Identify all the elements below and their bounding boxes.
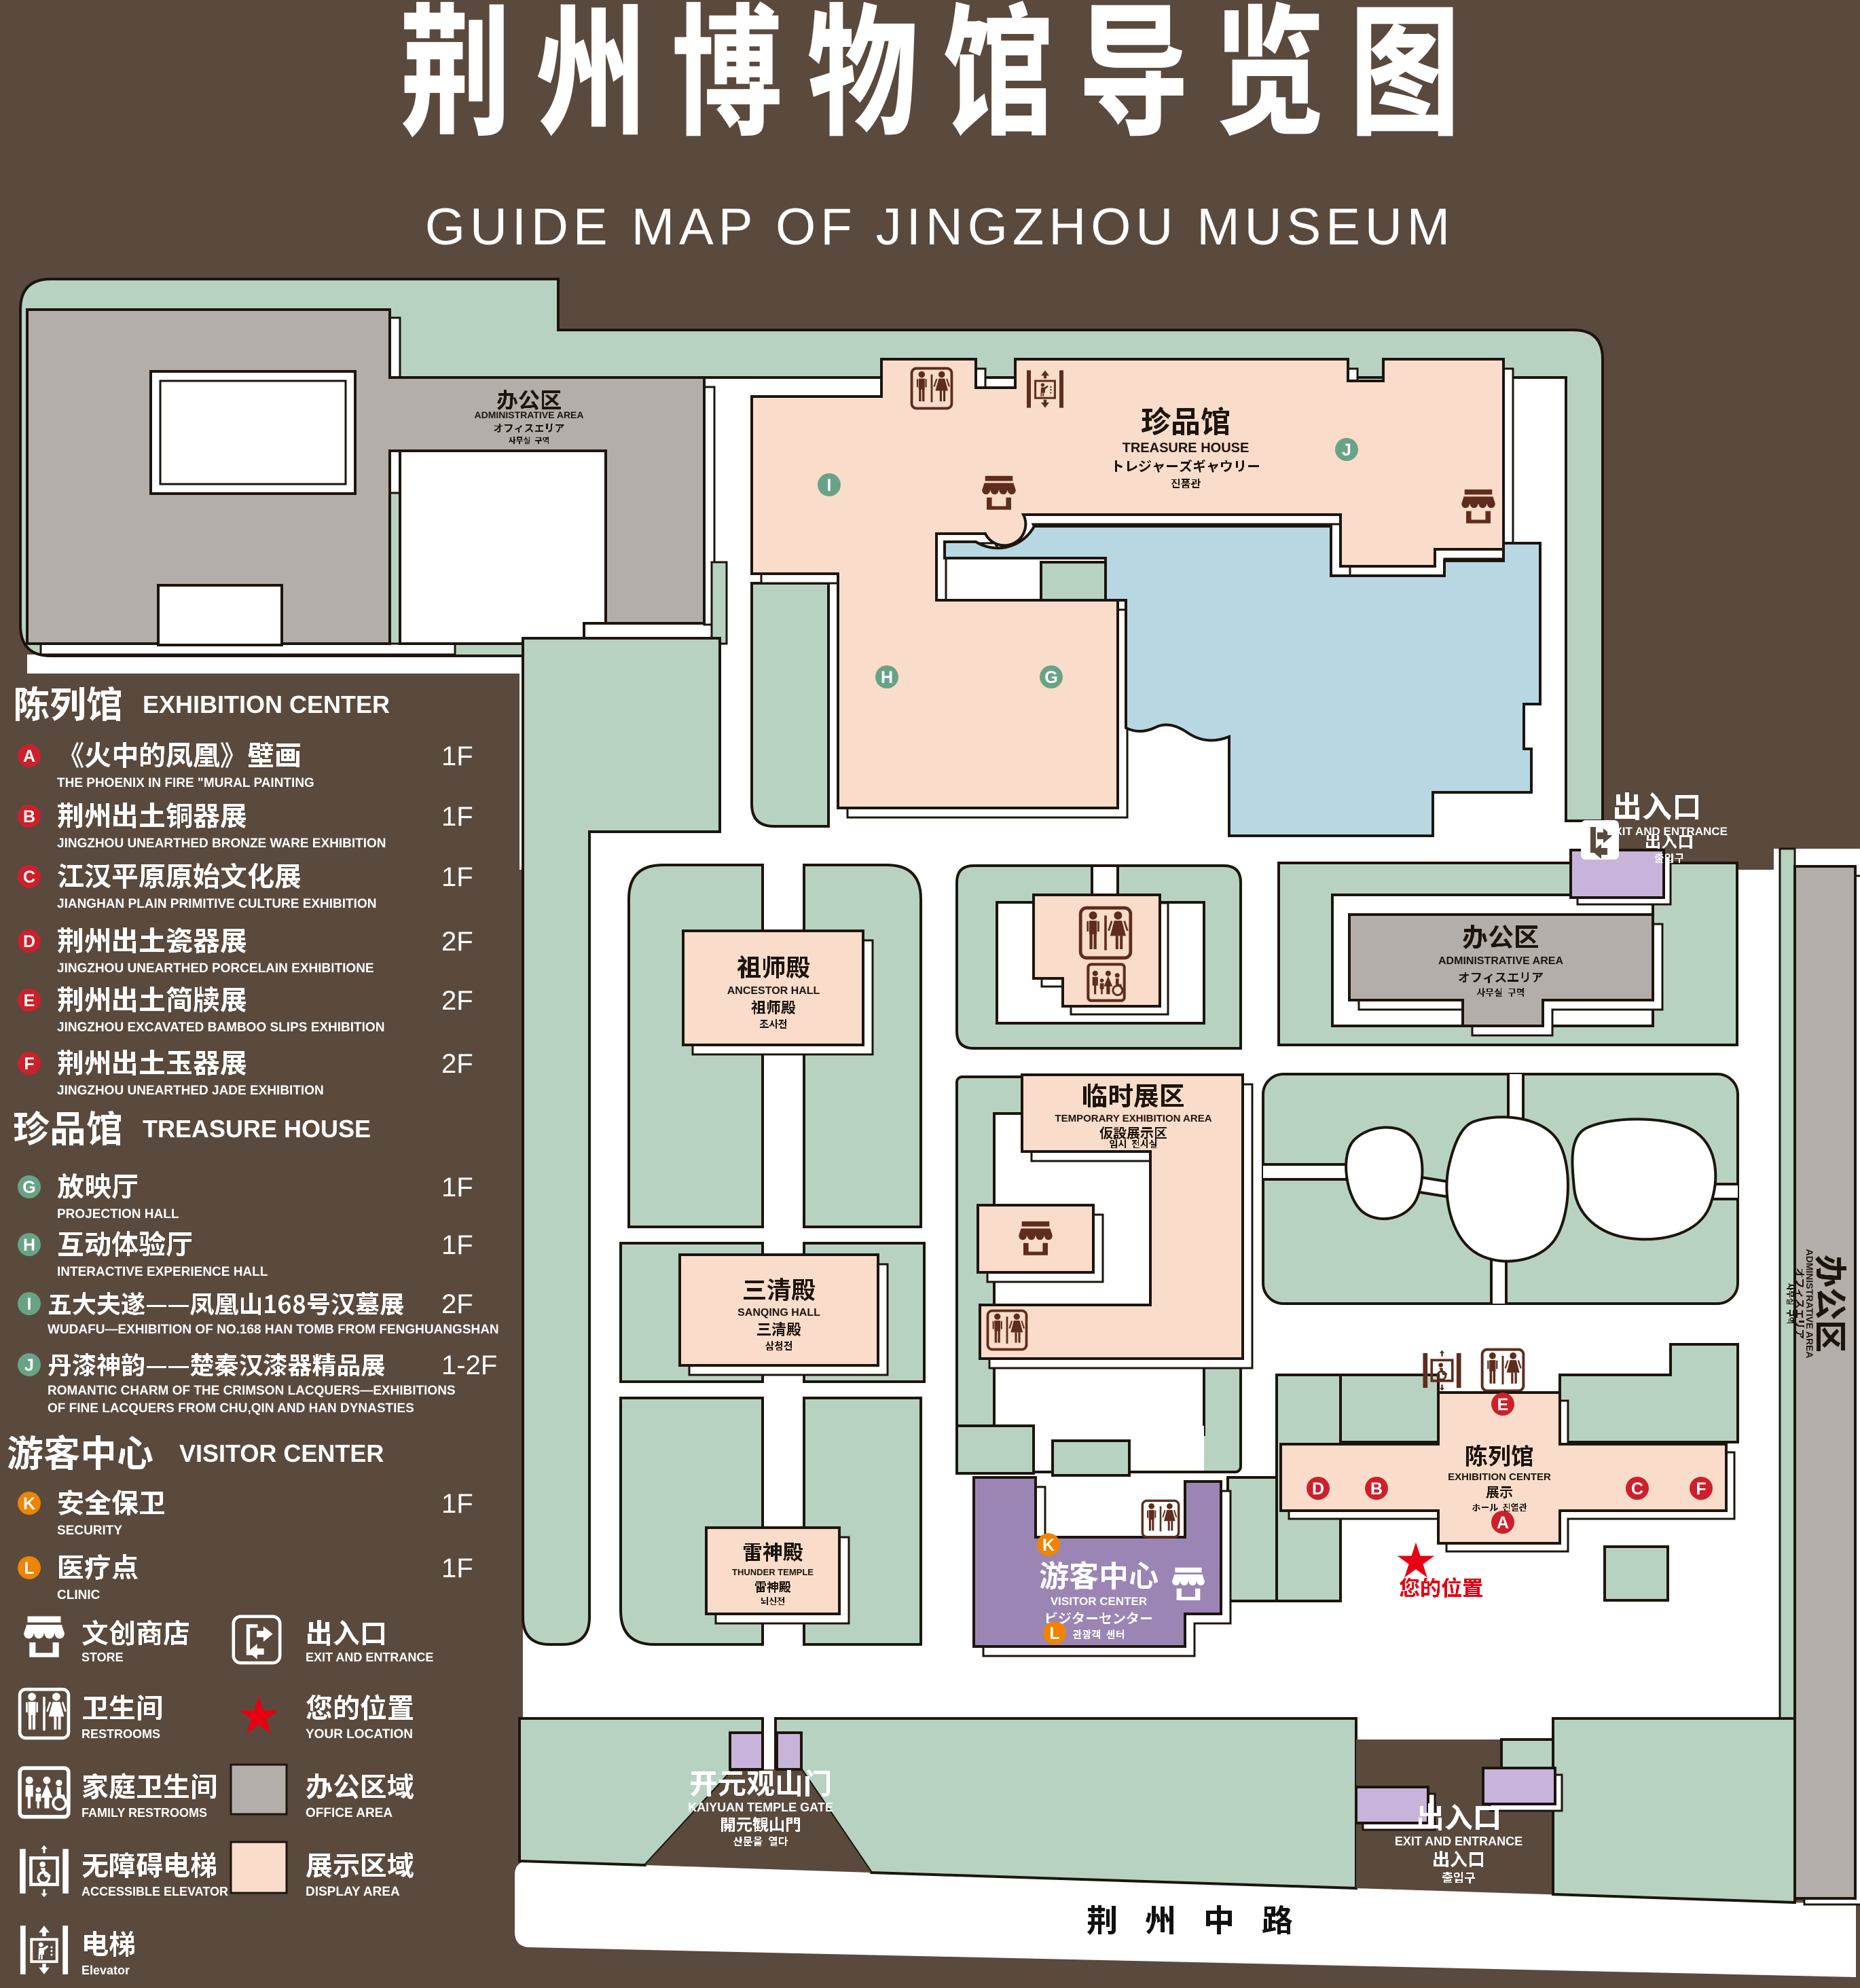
svg-text:J: J — [24, 1356, 34, 1375]
svg-text:TEMPORARY EXHIBITION AREA: TEMPORARY EXHIBITION AREA — [1055, 1113, 1211, 1124]
svg-text:ADMINISTRATIVE AREA: ADMINISTRATIVE AREA — [1438, 955, 1563, 967]
svg-text:SECURITY: SECURITY — [57, 1524, 122, 1538]
svg-text:RESTROOMS: RESTROOMS — [81, 1727, 160, 1741]
svg-text:TREASURE HOUSE: TREASURE HOUSE — [143, 1115, 371, 1143]
svg-text:1F: 1F — [441, 862, 473, 892]
svg-text:D: D — [23, 932, 35, 951]
svg-text:THE PHOENIX IN FIRE "MURAL PAI: THE PHOENIX IN FIRE "MURAL PAINTING — [57, 776, 314, 790]
svg-text:2F: 2F — [441, 986, 473, 1016]
svg-text:H: H — [881, 668, 893, 687]
svg-text:2F: 2F — [441, 1289, 473, 1319]
svg-text:ADMINISTRATIVE AREA: ADMINISTRATIVE AREA — [475, 409, 584, 420]
svg-text:L: L — [1049, 1624, 1059, 1643]
svg-text:C: C — [23, 868, 35, 887]
svg-text:GUIDE MAP OF JINGZHOU MUSEUM: GUIDE MAP OF JINGZHOU MUSEUM — [425, 198, 1455, 256]
svg-text:OFFICE AREA: OFFICE AREA — [306, 1806, 393, 1820]
svg-text:JINGZHOU UNEARTHED BRONZE WARE: JINGZHOU UNEARTHED BRONZE WARE EXHIBITIO… — [57, 836, 386, 851]
svg-text:B: B — [1370, 1479, 1383, 1498]
svg-text:JINGZHOU EXCAVATED BAMBOO SLIP: JINGZHOU EXCAVATED BAMBOO SLIPS EXHIBITI… — [57, 1020, 384, 1035]
svg-text:CLINIC: CLINIC — [57, 1588, 101, 1602]
svg-text:Elevator: Elevator — [81, 1964, 130, 1977]
svg-text:OF FINE LACQUERS FROM CHU,QIN: OF FINE LACQUERS FROM CHU,QIN AND HAN DY… — [48, 1401, 414, 1416]
svg-text:EXHIBITION CENTER: EXHIBITION CENTER — [143, 691, 390, 718]
svg-text:K: K — [1042, 1536, 1055, 1555]
svg-text:A: A — [23, 747, 35, 766]
svg-text:WUDAFU—EXHIBITION OF NO.168 HA: WUDAFU—EXHIBITION OF NO.168 HAN TOMB FRO… — [48, 1323, 499, 1337]
svg-text:INTERACTIVE EXPERIENCE HALL: INTERACTIVE EXPERIENCE HALL — [57, 1265, 268, 1279]
svg-text:1F: 1F — [441, 802, 473, 832]
svg-text:H: H — [23, 1236, 35, 1255]
svg-text:STORE: STORE — [81, 1651, 124, 1664]
svg-text:I: I — [27, 1295, 32, 1314]
svg-text:EXIT AND ENTRANCE: EXIT AND ENTRANCE — [306, 1651, 433, 1664]
svg-text:J: J — [1342, 441, 1351, 460]
svg-text:PROJECTION HALL: PROJECTION HALL — [57, 1207, 179, 1221]
svg-text:E: E — [24, 991, 35, 1010]
svg-text:D: D — [1312, 1479, 1324, 1498]
svg-text:G: G — [1044, 668, 1057, 687]
svg-text:E: E — [1497, 1395, 1509, 1414]
svg-text:JINGZHOU UNEARTHED PORCELAIN E: JINGZHOU UNEARTHED PORCELAIN EXHIBITIONE — [57, 961, 374, 976]
svg-text:ROMANTIC CHARM OF THE CRIMSON: ROMANTIC CHARM OF THE CRIMSON LACQUERS—E… — [48, 1384, 456, 1398]
svg-text:SANQING HALL: SANQING HALL — [737, 1307, 820, 1319]
svg-text:FAMILY RESTROOMS: FAMILY RESTROOMS — [81, 1806, 207, 1820]
svg-text:VISITOR CENTER: VISITOR CENTER — [179, 1439, 384, 1467]
svg-text:ADMINISTRATIVE AREA: ADMINISTRATIVE AREA — [1804, 1249, 1815, 1359]
svg-text:TREASURE HOUSE: TREASURE HOUSE — [1123, 441, 1250, 456]
svg-text:B: B — [23, 807, 35, 826]
svg-text:1F: 1F — [441, 741, 473, 771]
svg-text:L: L — [24, 1559, 34, 1578]
svg-text:2F: 2F — [441, 1049, 473, 1079]
svg-text:1F: 1F — [441, 1553, 473, 1583]
svg-text:1-2F: 1-2F — [441, 1350, 497, 1380]
svg-text:F: F — [24, 1054, 34, 1073]
svg-text:1F: 1F — [441, 1173, 473, 1202]
svg-text:I: I — [827, 476, 832, 495]
svg-text:C: C — [1631, 1479, 1643, 1498]
svg-text:JINGZHOU UNEARTHED JADE EXHIBI: JINGZHOU UNEARTHED JADE EXHIBITION — [57, 1084, 324, 1098]
svg-text:G: G — [22, 1178, 35, 1197]
svg-text:THUNDER TEMPLE: THUNDER TEMPLE — [732, 1567, 814, 1577]
svg-text:EXHIBITION CENTER: EXHIBITION CENTER — [1448, 1471, 1551, 1483]
svg-text:ACCESSIBLE ELEVATOR: ACCESSIBLE ELEVATOR — [81, 1885, 228, 1898]
svg-text:YOUR LOCATION: YOUR LOCATION — [306, 1727, 413, 1742]
svg-text:A: A — [1497, 1513, 1509, 1532]
svg-text:VISITOR CENTER: VISITOR CENTER — [1051, 1595, 1147, 1608]
svg-text:JIANGHAN PLAIN PRIMITIVE CULTU: JIANGHAN PLAIN PRIMITIVE CULTURE EXHIBIT… — [57, 897, 376, 911]
svg-text:ANCESTOR HALL: ANCESTOR HALL — [727, 985, 820, 997]
svg-text:1F: 1F — [441, 1489, 473, 1519]
svg-text:K: K — [23, 1494, 35, 1513]
svg-text:EXIT AND ENTRANCE: EXIT AND ENTRANCE — [1395, 1835, 1522, 1848]
svg-text:F: F — [1696, 1479, 1706, 1498]
svg-text:1F: 1F — [441, 1230, 473, 1260]
svg-text:2F: 2F — [441, 927, 473, 957]
svg-text:KAIYUAN TEMPLE GATE: KAIYUAN TEMPLE GATE — [688, 1801, 833, 1814]
svg-text:DISPLAY AREA: DISPLAY AREA — [306, 1885, 400, 1899]
